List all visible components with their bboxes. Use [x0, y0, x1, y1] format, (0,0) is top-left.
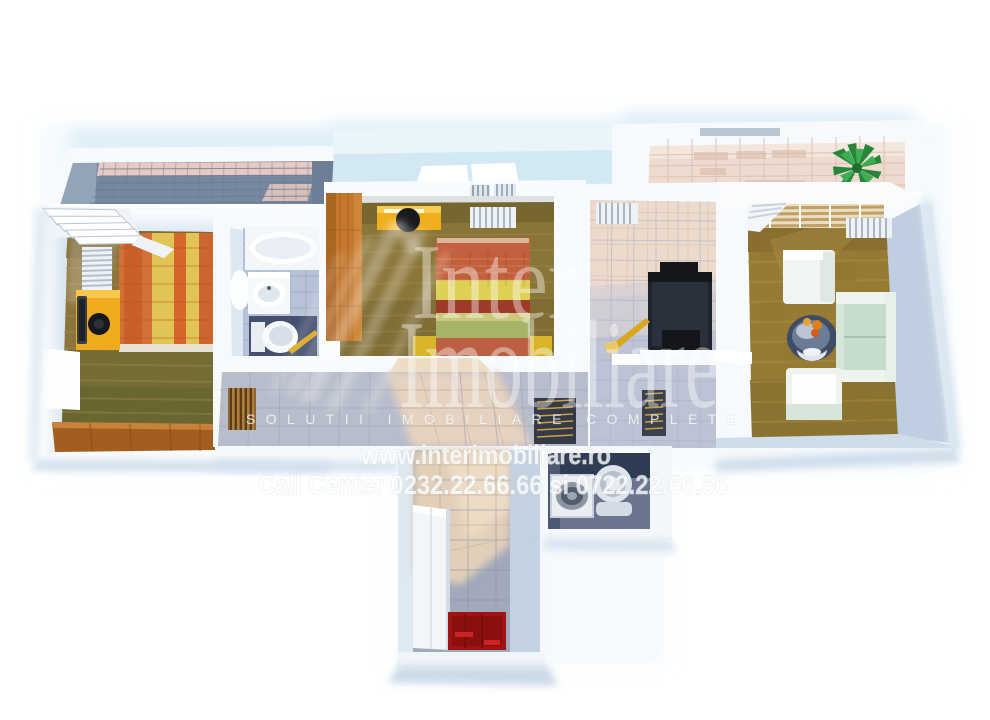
svg-text:Call Center 0232.22.66.66 si 0: Call Center 0232.22.66.66 si 0722.22.66.… — [258, 470, 728, 500]
svg-text:www.interimobiliare.ro: www.interimobiliare.ro — [360, 440, 611, 470]
